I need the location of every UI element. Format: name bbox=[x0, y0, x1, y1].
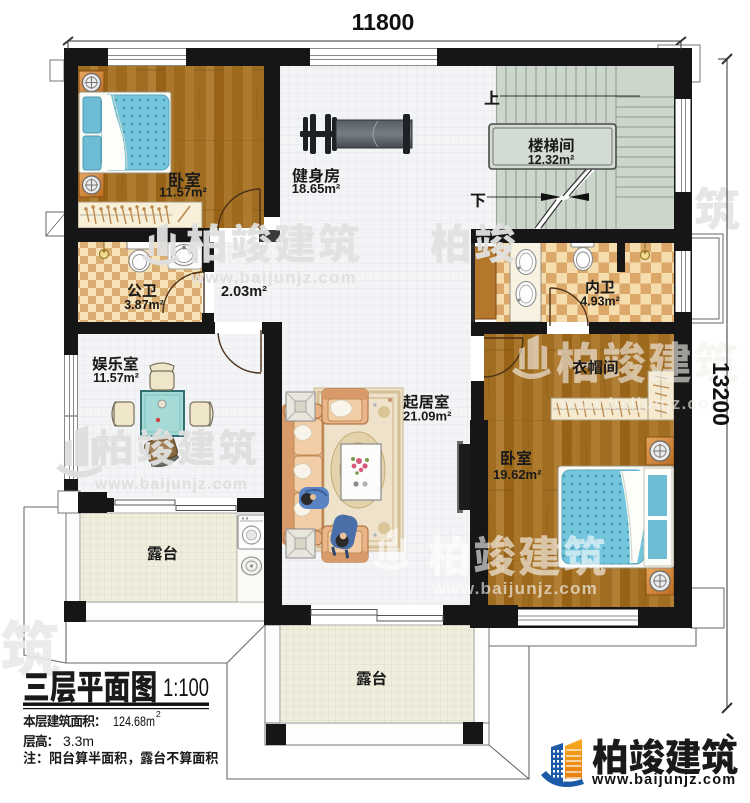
svg-text:www.baijunjz.com: www.baijunjz.com bbox=[591, 772, 736, 788]
svg-text:3.87m²: 3.87m² bbox=[124, 298, 164, 312]
svg-text:11.57m²: 11.57m² bbox=[93, 371, 139, 385]
svg-text:2.03m²: 2.03m² bbox=[221, 284, 267, 300]
svg-text:124.68m: 124.68m bbox=[113, 714, 155, 729]
svg-text:3.3m: 3.3m bbox=[63, 734, 94, 749]
svg-text:11800: 11800 bbox=[352, 9, 415, 35]
svg-text:13200: 13200 bbox=[708, 362, 734, 426]
svg-text:12.32m²: 12.32m² bbox=[528, 153, 575, 167]
svg-text:www.baijunjz.com: www.baijunjz.com bbox=[94, 476, 248, 493]
svg-text:18.65m²: 18.65m² bbox=[292, 181, 341, 196]
svg-text:www.baijunjz.com: www.baijunjz.com bbox=[431, 579, 598, 598]
svg-text:19.62m²: 19.62m² bbox=[493, 467, 542, 482]
svg-text:1:100: 1:100 bbox=[163, 674, 209, 702]
svg-text:4.93m²: 4.93m² bbox=[580, 295, 620, 309]
svg-text:21.09m²: 21.09m² bbox=[403, 409, 452, 424]
svg-text:11.57m²: 11.57m² bbox=[159, 185, 207, 200]
svg-text:www.baijunjz.com: www.baijunjz.com bbox=[559, 394, 726, 413]
svg-text:2: 2 bbox=[156, 709, 161, 719]
svg-text:www.baijunjz.com: www.baijunjz.com bbox=[190, 268, 357, 287]
